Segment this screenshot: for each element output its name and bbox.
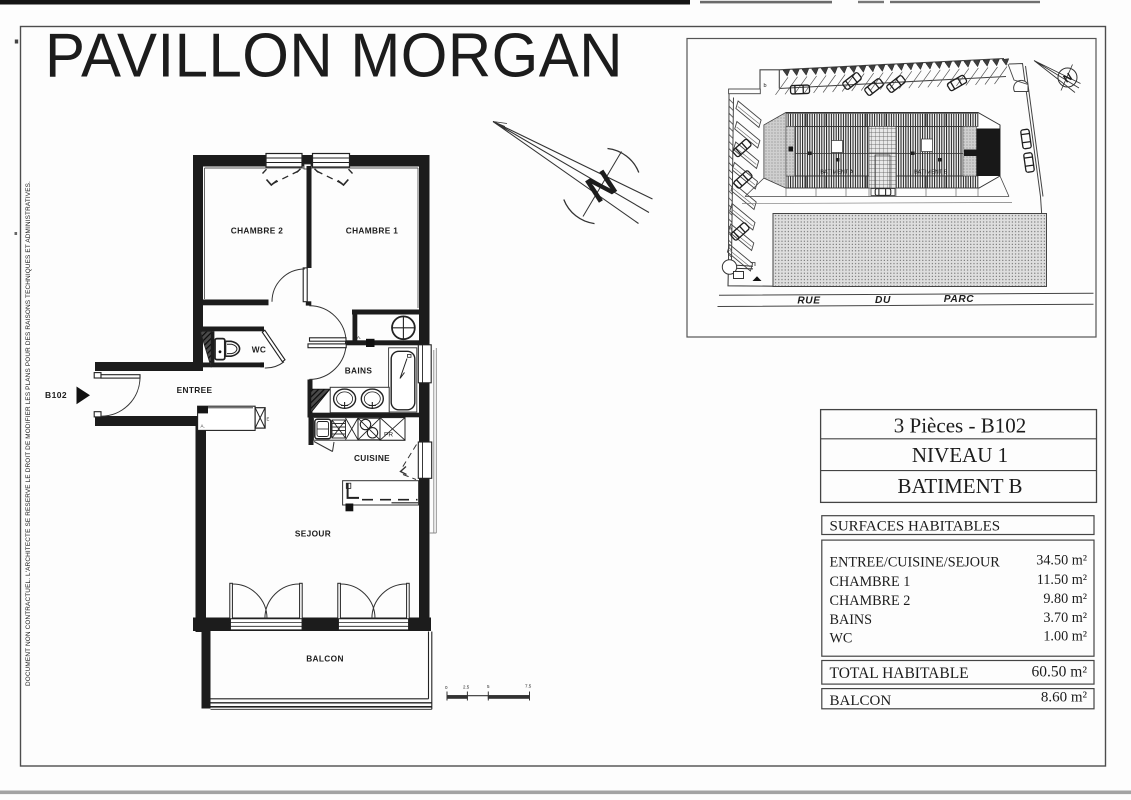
svg-text:BATIMENT B: BATIMENT B	[897, 474, 1022, 498]
svg-text:PR: PR	[384, 432, 393, 439]
svg-text:2.5: 2.5	[463, 685, 470, 690]
svg-text:SURFACES HABITABLES: SURFACES HABITABLES	[830, 519, 1001, 535]
svg-text:CHAMBRE 2: CHAMBRE 2	[830, 593, 911, 609]
svg-text:34.50 m²: 34.50 m²	[1036, 553, 1087, 569]
svg-text:11.50 m²: 11.50 m²	[1037, 572, 1087, 588]
svg-text:DU: DU	[875, 295, 891, 306]
svg-text:N: N	[579, 162, 624, 211]
svg-text:TOTAL HABITABLE: TOTAL HABITABLE	[830, 665, 969, 682]
svg-text:DOCUMENT NON CONTRACTUEL. L'AR: DOCUMENT NON CONTRACTUEL. L'ARCHITECTE S…	[25, 181, 32, 686]
svg-text:BAINS: BAINS	[830, 612, 873, 628]
svg-text:ENTREE: ENTREE	[177, 385, 213, 395]
svg-text:b: b	[764, 83, 767, 89]
svg-text:ENTREE/CUISINE/SEJOUR: ENTREE/CUISINE/SEJOUR	[830, 555, 1001, 571]
svg-text:SEJOUR: SEJOUR	[295, 529, 331, 539]
svg-text:NIVEAU 1: NIVEAU 1	[912, 443, 1008, 467]
svg-text:PAVILLON MORGAN: PAVILLON MORGAN	[45, 22, 623, 91]
svg-text:A.: A.	[201, 424, 205, 429]
svg-text:CHAMBRE 1: CHAMBRE 1	[830, 574, 911, 590]
svg-text:BATIMENT B: BATIMENT B	[914, 170, 948, 176]
svg-text:WC: WC	[830, 631, 853, 647]
svg-text:BALCON: BALCON	[830, 693, 892, 709]
svg-text:7.5: 7.5	[525, 684, 532, 689]
svg-text:9.80 m²: 9.80 m²	[1043, 591, 1087, 607]
svg-text:CUISINE: CUISINE	[354, 453, 390, 463]
svg-text:B102: B102	[45, 390, 67, 400]
svg-text:60.50 m²: 60.50 m²	[1032, 664, 1088, 681]
svg-text:0: 0	[445, 685, 448, 690]
svg-text:BAINS: BAINS	[345, 366, 373, 376]
svg-text:PARC: PARC	[944, 294, 975, 305]
svg-text:RUE: RUE	[797, 296, 821, 307]
svg-text:BATIMENT A: BATIMENT A	[820, 170, 854, 176]
svg-text:3 Pièces - B102: 3 Pièces - B102	[894, 414, 1026, 438]
svg-text:8.60 m²: 8.60 m²	[1041, 690, 1088, 706]
svg-text:E: E	[267, 417, 270, 422]
svg-text:CHAMBRE 2: CHAMBRE 2	[231, 226, 284, 236]
svg-text:1.00 m²: 1.00 m²	[1043, 629, 1087, 645]
svg-text:5: 5	[487, 684, 490, 689]
svg-text:WC: WC	[252, 345, 267, 355]
svg-text:3.70 m²: 3.70 m²	[1043, 610, 1087, 626]
svg-text:CHAMBRE 1: CHAMBRE 1	[346, 226, 399, 236]
svg-text:BALCON: BALCON	[306, 654, 344, 664]
svg-text:A.: A.	[357, 335, 361, 340]
